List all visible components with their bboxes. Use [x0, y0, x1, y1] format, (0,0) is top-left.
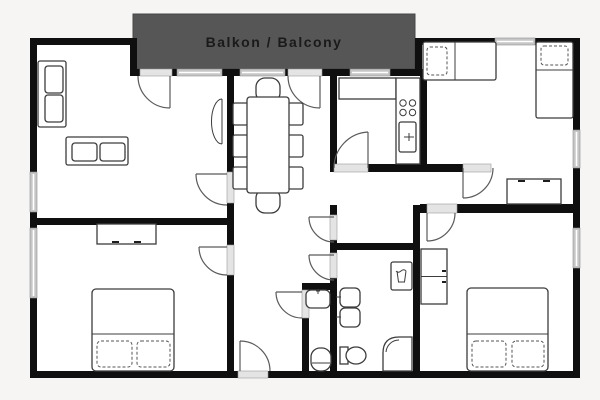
- wall: [413, 205, 420, 372]
- wall: [420, 204, 427, 213]
- bathroom-sink: [340, 288, 360, 307]
- sofa-cushion: [72, 143, 97, 161]
- bathroom-sink: [340, 308, 360, 327]
- wall: [302, 283, 309, 290]
- dresser: [97, 224, 156, 244]
- wall: [390, 69, 422, 76]
- wall: [330, 205, 337, 215]
- dining-table: [247, 97, 289, 193]
- wall: [573, 38, 580, 130]
- wall: [30, 371, 238, 378]
- balcony-label: Balkon / Balcony: [206, 34, 343, 50]
- wall: [285, 69, 288, 76]
- wall: [30, 38, 137, 45]
- wall: [130, 38, 137, 76]
- door-threshold: [330, 215, 337, 240]
- wall: [302, 318, 309, 372]
- wall: [420, 69, 427, 172]
- wall: [457, 204, 580, 213]
- desk: [507, 179, 561, 204]
- wardrobe-handle: [442, 270, 446, 272]
- pillow: [472, 341, 506, 367]
- drawer-handle: [112, 241, 119, 243]
- floor-plan: Balkon / Balcony: [0, 0, 600, 400]
- pillow: [137, 341, 170, 367]
- wall: [573, 268, 580, 378]
- kitchen-counter: [339, 78, 396, 99]
- floor-plan-drawing: Balkon / Balcony: [0, 0, 600, 400]
- washing-machine: [391, 262, 412, 290]
- door-threshold: [140, 69, 172, 76]
- shower: [383, 337, 412, 371]
- drawer-handle: [543, 180, 550, 182]
- door-threshold: [463, 164, 491, 172]
- sofa-cushion: [45, 95, 63, 122]
- door-threshold: [227, 245, 234, 275]
- wall: [227, 275, 234, 371]
- wall: [337, 243, 413, 250]
- door-threshold: [334, 164, 368, 172]
- pillow: [427, 47, 447, 75]
- wall: [30, 38, 37, 172]
- door-threshold: [427, 204, 457, 213]
- drawer-handle: [518, 180, 525, 182]
- wc-toilet: [311, 348, 331, 371]
- toilet: [346, 347, 366, 364]
- wall: [172, 69, 177, 76]
- wall: [309, 283, 337, 290]
- wall: [268, 371, 580, 378]
- sofa-cushion: [100, 143, 125, 161]
- wall: [30, 298, 37, 378]
- wardrobe-handle: [442, 281, 446, 283]
- balcony-banner: Balkon / Balcony: [133, 14, 415, 69]
- pillow: [512, 341, 544, 367]
- drawer-handle: [134, 241, 141, 243]
- wall: [368, 164, 463, 172]
- entrance-threshold: [238, 371, 268, 378]
- sofa-cushion: [45, 66, 63, 93]
- pillow: [541, 46, 568, 65]
- door-threshold: [288, 69, 322, 76]
- wall: [573, 168, 580, 228]
- door-threshold: [330, 253, 337, 278]
- pillow: [97, 341, 132, 367]
